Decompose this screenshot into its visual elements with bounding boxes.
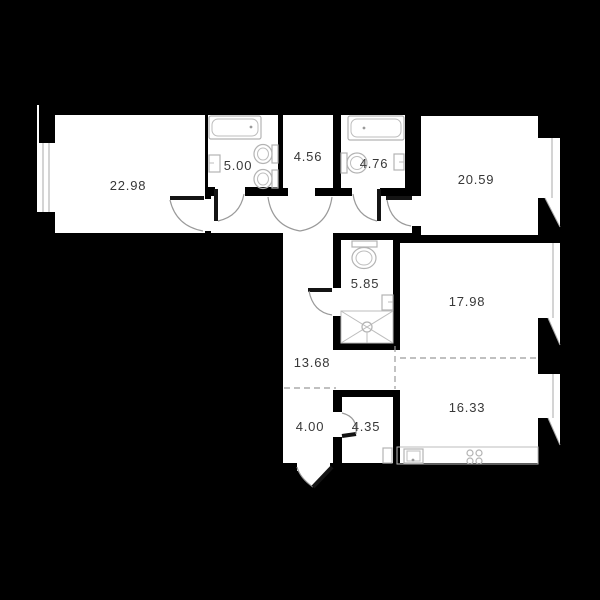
entrance-door — [297, 467, 332, 487]
bathtub-2-drain — [363, 127, 366, 130]
label-storage: 4.35 — [352, 419, 381, 434]
window-right-middle — [538, 243, 560, 345]
opening-bedroom — [411, 196, 422, 226]
opening-wardrobe — [288, 187, 315, 197]
floor-plan-canvas: 22.98 5.00 4.56 4.76 20.59 5.85 17.98 13… — [0, 0, 600, 600]
label-right-middle: 17.98 — [449, 294, 486, 309]
opening-storage — [331, 412, 343, 437]
window-rm-frame — [538, 243, 560, 345]
label-bathroom-2: 4.76 — [360, 156, 389, 171]
label-hallway: 13.68 — [294, 355, 331, 370]
label-bedroom: 20.59 — [458, 172, 495, 187]
window-rt-frame — [538, 138, 560, 227]
opening-bath2 — [352, 187, 380, 197]
opening-living — [204, 199, 213, 231]
opening-bath1 — [215, 187, 245, 197]
wall-edge-mark — [37, 105, 39, 143]
window-left-frame — [37, 143, 55, 212]
window-left — [37, 105, 55, 212]
door-storage-leaf — [342, 434, 356, 436]
room-right-open-floor — [400, 243, 538, 463]
label-wardrobe: 4.56 — [294, 149, 323, 164]
corridor-wide-floor — [333, 350, 400, 390]
label-bathroom-1: 5.00 — [224, 158, 253, 173]
window-right-bottom — [538, 374, 560, 445]
label-kitchen: 16.33 — [449, 400, 486, 415]
window-right-top — [538, 138, 560, 227]
bathtub-1-drain — [250, 126, 253, 129]
label-entry: 4.00 — [296, 419, 325, 434]
kitchen-sink-tap — [412, 459, 415, 462]
window-rb-frame — [538, 374, 560, 445]
room-living-left-floor — [55, 115, 205, 233]
label-shower-room: 5.85 — [351, 276, 380, 291]
label-living-left: 22.98 — [110, 178, 147, 193]
floor-plan: 22.98 5.00 4.56 4.76 20.59 5.85 17.98 13… — [0, 0, 600, 600]
